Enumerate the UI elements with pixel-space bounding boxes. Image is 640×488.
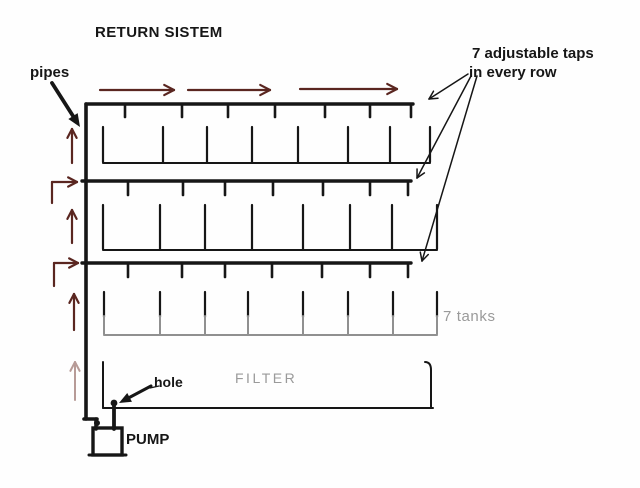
taps-pointer-head xyxy=(429,98,438,99)
filter-right-wall xyxy=(425,362,431,408)
pump-inlet-joint xyxy=(94,420,100,426)
diagram-title: RETURN SISTEM xyxy=(95,24,223,41)
taps-pointer-head xyxy=(420,252,422,261)
hole-dot xyxy=(111,400,118,407)
taps-note-line1: 7 adjustable taps xyxy=(472,44,594,63)
tanks-label: 7 tanks xyxy=(443,308,496,325)
taps-note-line2: in every row xyxy=(469,63,594,82)
taps-pointer xyxy=(417,76,471,178)
hole-arrow xyxy=(130,386,151,397)
taps-pointer xyxy=(429,74,468,99)
filter-label: FILTER xyxy=(235,370,297,386)
taps-note: 7 adjustable taps in every row xyxy=(469,44,594,82)
sketch-page: RETURN SISTEM pipes 7 adjustable taps in… xyxy=(0,0,640,488)
pipes-arrow xyxy=(52,83,73,116)
pipes-label: pipes xyxy=(30,64,69,81)
pump-body xyxy=(93,428,122,455)
hole-label: hole xyxy=(154,374,183,390)
pump-label: PUMP xyxy=(126,431,169,448)
taps-pointer xyxy=(422,76,477,261)
